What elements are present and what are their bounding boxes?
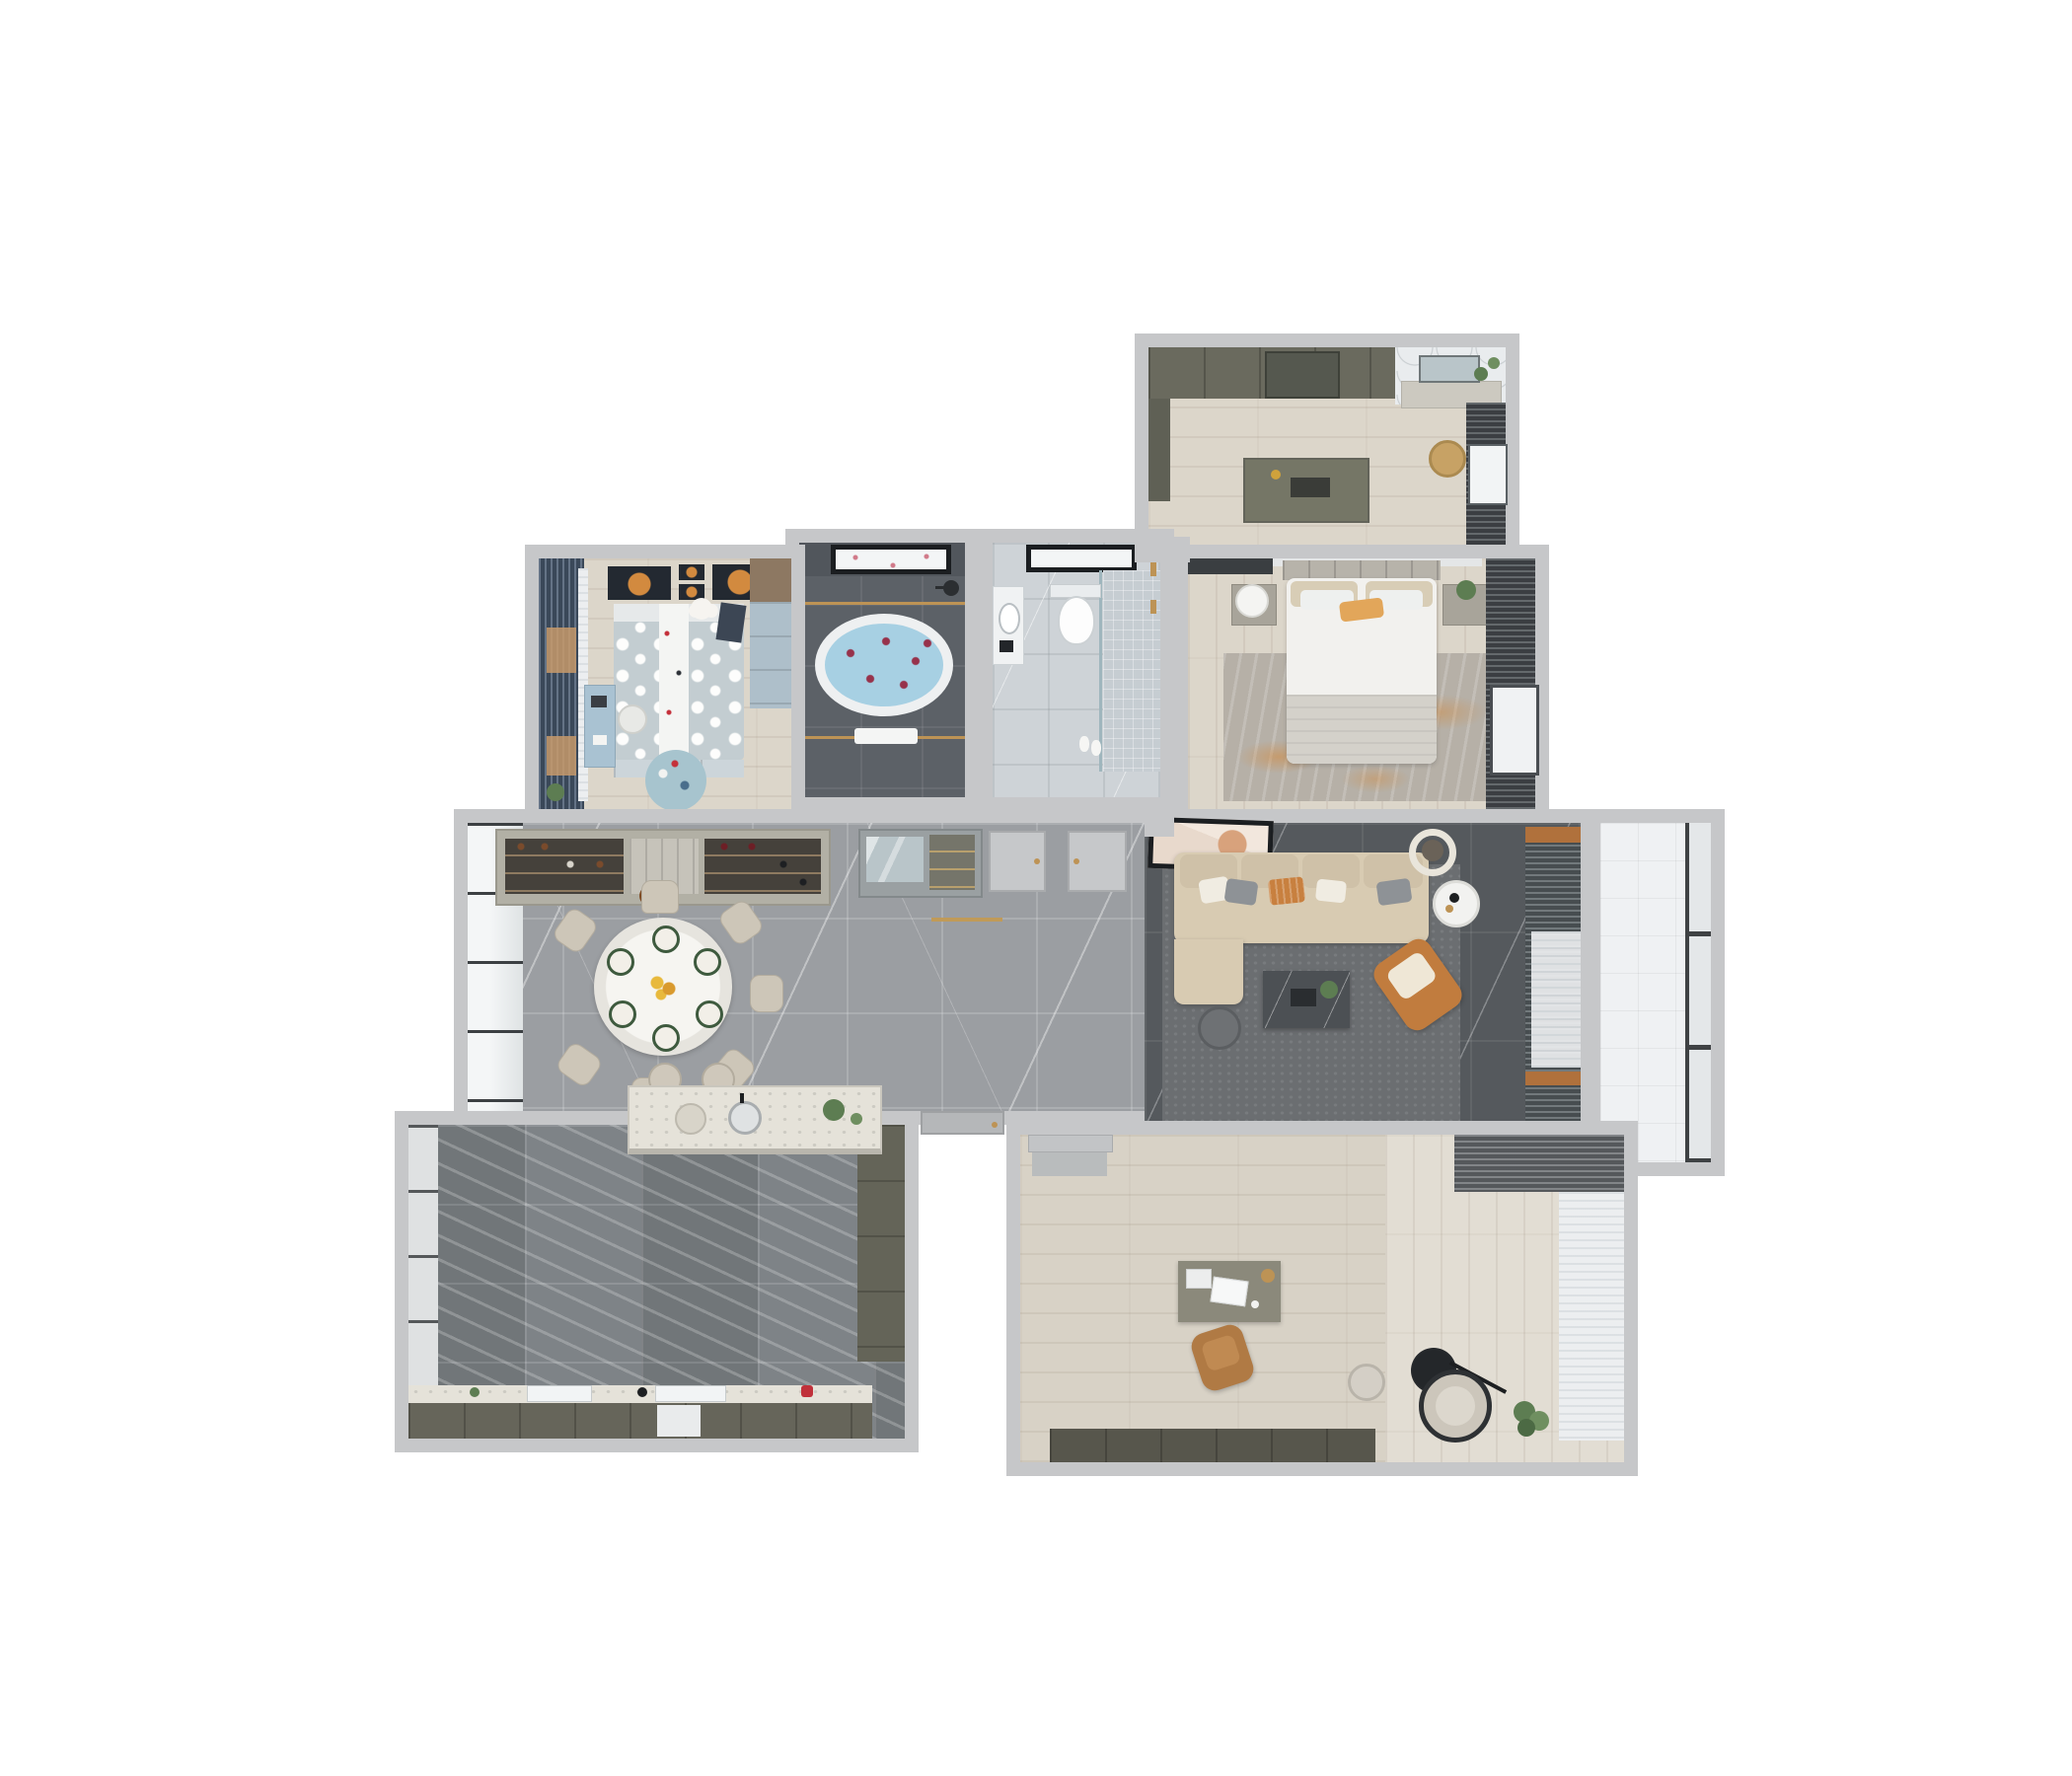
place-setting (696, 1000, 723, 1028)
door-handle (992, 1122, 998, 1128)
island-dresser (1243, 458, 1369, 523)
side-cabinet (1148, 399, 1170, 501)
ring-light-center (1422, 840, 1443, 861)
books (1186, 1269, 1212, 1289)
desk-chair (618, 704, 647, 734)
island-sink (728, 1101, 762, 1135)
shoe-cabinet (929, 835, 975, 890)
wall-hung-toilet (1058, 596, 1095, 645)
accent-pillow-orange (1339, 597, 1384, 622)
plant-icon (547, 783, 564, 801)
bathroom-window (831, 545, 951, 574)
curtain-wood-accent (547, 736, 576, 776)
side-table-dark (1198, 1006, 1241, 1050)
dishwasher (657, 1405, 701, 1437)
desk-lamp (1261, 1269, 1275, 1283)
pillow-orange (1268, 876, 1306, 906)
pillow-grey (1375, 878, 1412, 906)
teddy-bear (691, 598, 712, 620)
dining-chair (750, 975, 783, 1012)
sink-unit (655, 1385, 726, 1402)
glass-wardrobe-section (1265, 351, 1340, 399)
dark-throw (715, 602, 746, 642)
pillow-white (1315, 878, 1347, 903)
plant-icon (851, 1113, 862, 1125)
coffee-cup (1251, 1300, 1259, 1308)
tall-cabinet-column (857, 1125, 905, 1362)
wardrobe-top (750, 558, 791, 602)
lounge-cushion (1436, 1386, 1475, 1426)
curtain-orange-accent (1525, 1072, 1581, 1085)
potted-plant (1508, 1399, 1555, 1446)
slipper (1091, 740, 1101, 756)
balcony-window-wall (1685, 823, 1711, 1162)
headboard (1283, 560, 1441, 580)
plant-icon (1320, 981, 1338, 999)
vanity (993, 586, 1024, 665)
cooktop (527, 1385, 592, 1402)
room-living (1145, 809, 1594, 1160)
wall-junction (1135, 537, 1190, 562)
curtain-orange-accent (1525, 827, 1581, 843)
slipper (1079, 736, 1089, 752)
room-dining-hall (454, 809, 1145, 1125)
shower-head-icon (943, 580, 959, 596)
interior-door (989, 831, 1046, 892)
chair-cushion (1201, 1334, 1242, 1372)
base-cabinet-run (408, 1403, 872, 1439)
faucet (740, 1093, 744, 1103)
entry-console (858, 829, 983, 898)
towel (854, 728, 918, 744)
lounge-chair (1419, 1369, 1492, 1443)
sofa-main (1174, 852, 1429, 943)
table-lamp-black (1449, 893, 1459, 903)
white-runner-blanket (659, 604, 689, 760)
pillow-grey (1223, 878, 1258, 906)
tray (1291, 478, 1330, 497)
interior-door (1028, 1135, 1113, 1152)
table-lamp (1235, 584, 1269, 618)
place-setting (609, 1000, 636, 1028)
sofa-chaise (1174, 939, 1243, 1004)
room-kitchen (395, 1111, 919, 1452)
gold-fixture (1150, 600, 1156, 614)
desk (1178, 1261, 1281, 1322)
room-master-bedroom (1174, 545, 1549, 833)
rattan-basket (1429, 440, 1466, 478)
entrance-recess (919, 1125, 1006, 1476)
floor-plan-render (0, 0, 2072, 1776)
decor-gold (1445, 905, 1453, 913)
mirror (1419, 355, 1480, 383)
foot-blanket (1287, 695, 1437, 764)
side-table (1348, 1364, 1385, 1401)
task-chair (1188, 1321, 1257, 1394)
interior-door (1068, 831, 1127, 892)
room-toilet (979, 529, 1174, 811)
tray (1291, 989, 1316, 1006)
flower-vase (1271, 470, 1281, 480)
faucet (637, 1387, 647, 1397)
coffee-table (1263, 971, 1350, 1028)
sheer-panel (1531, 931, 1581, 1068)
console-mirror (866, 837, 924, 882)
wardrobe (750, 602, 791, 708)
double-bed (1287, 578, 1437, 764)
place-setting (607, 948, 634, 976)
room-bathroom (785, 529, 979, 811)
soap-set (999, 640, 1013, 652)
serving-tray (675, 1103, 706, 1135)
wine-shelves (704, 839, 821, 894)
kitchen-window-wall (408, 1125, 438, 1403)
plant-icon (1488, 357, 1500, 369)
freestanding-bathtub (815, 614, 953, 716)
curtain-run (1454, 1135, 1624, 1192)
plant-icon (470, 1387, 480, 1397)
place-setting (652, 1024, 680, 1052)
door-mat (1032, 1152, 1107, 1176)
kids-desk (584, 685, 616, 768)
toilet-window (1026, 545, 1137, 572)
door-handle (1034, 858, 1040, 864)
place-setting (694, 948, 721, 976)
wine-shelves (505, 839, 624, 894)
round-play-rug (645, 750, 706, 811)
place-setting (652, 925, 680, 953)
tv-panel (1188, 558, 1273, 574)
wall-art-planet (608, 566, 671, 600)
flower-centerpiece (645, 969, 681, 1004)
plant-icon (1474, 367, 1488, 381)
island-counter (628, 1085, 882, 1154)
dining-chair (551, 906, 600, 956)
wall-junction (1145, 809, 1174, 837)
sheer-panel (1559, 1192, 1624, 1441)
desk-item (591, 696, 607, 707)
threshold-strip (931, 918, 1002, 922)
shower-arm (935, 586, 945, 589)
red-kettle (801, 1385, 813, 1397)
round-dining-table (594, 918, 732, 1056)
laptop (1210, 1277, 1248, 1307)
dining-chair (641, 880, 679, 914)
paper (593, 735, 607, 745)
room-study (1006, 1121, 1638, 1476)
side-table-white (1433, 880, 1480, 927)
armchair-cushion (1385, 950, 1439, 1001)
main-entry-door (921, 1111, 1004, 1135)
plant-icon (1456, 580, 1476, 600)
door-handle (1073, 858, 1079, 864)
room-kids-bedroom (525, 545, 805, 825)
low-cabinet-run (1050, 1429, 1375, 1462)
roller-blind (1468, 444, 1508, 505)
kids-bed (614, 604, 744, 760)
roller-blind-window (1490, 685, 1539, 776)
dining-chair (555, 1040, 605, 1089)
room-walk-in-closet (1135, 333, 1519, 562)
plant-leaves (1517, 1419, 1535, 1437)
sink (999, 603, 1020, 634)
wall-art-planet (679, 564, 704, 580)
towel-rail (799, 602, 965, 605)
curtain-wood-accent (547, 628, 576, 673)
plant-icon (823, 1099, 845, 1121)
ceiling-ring-light (1409, 829, 1456, 876)
